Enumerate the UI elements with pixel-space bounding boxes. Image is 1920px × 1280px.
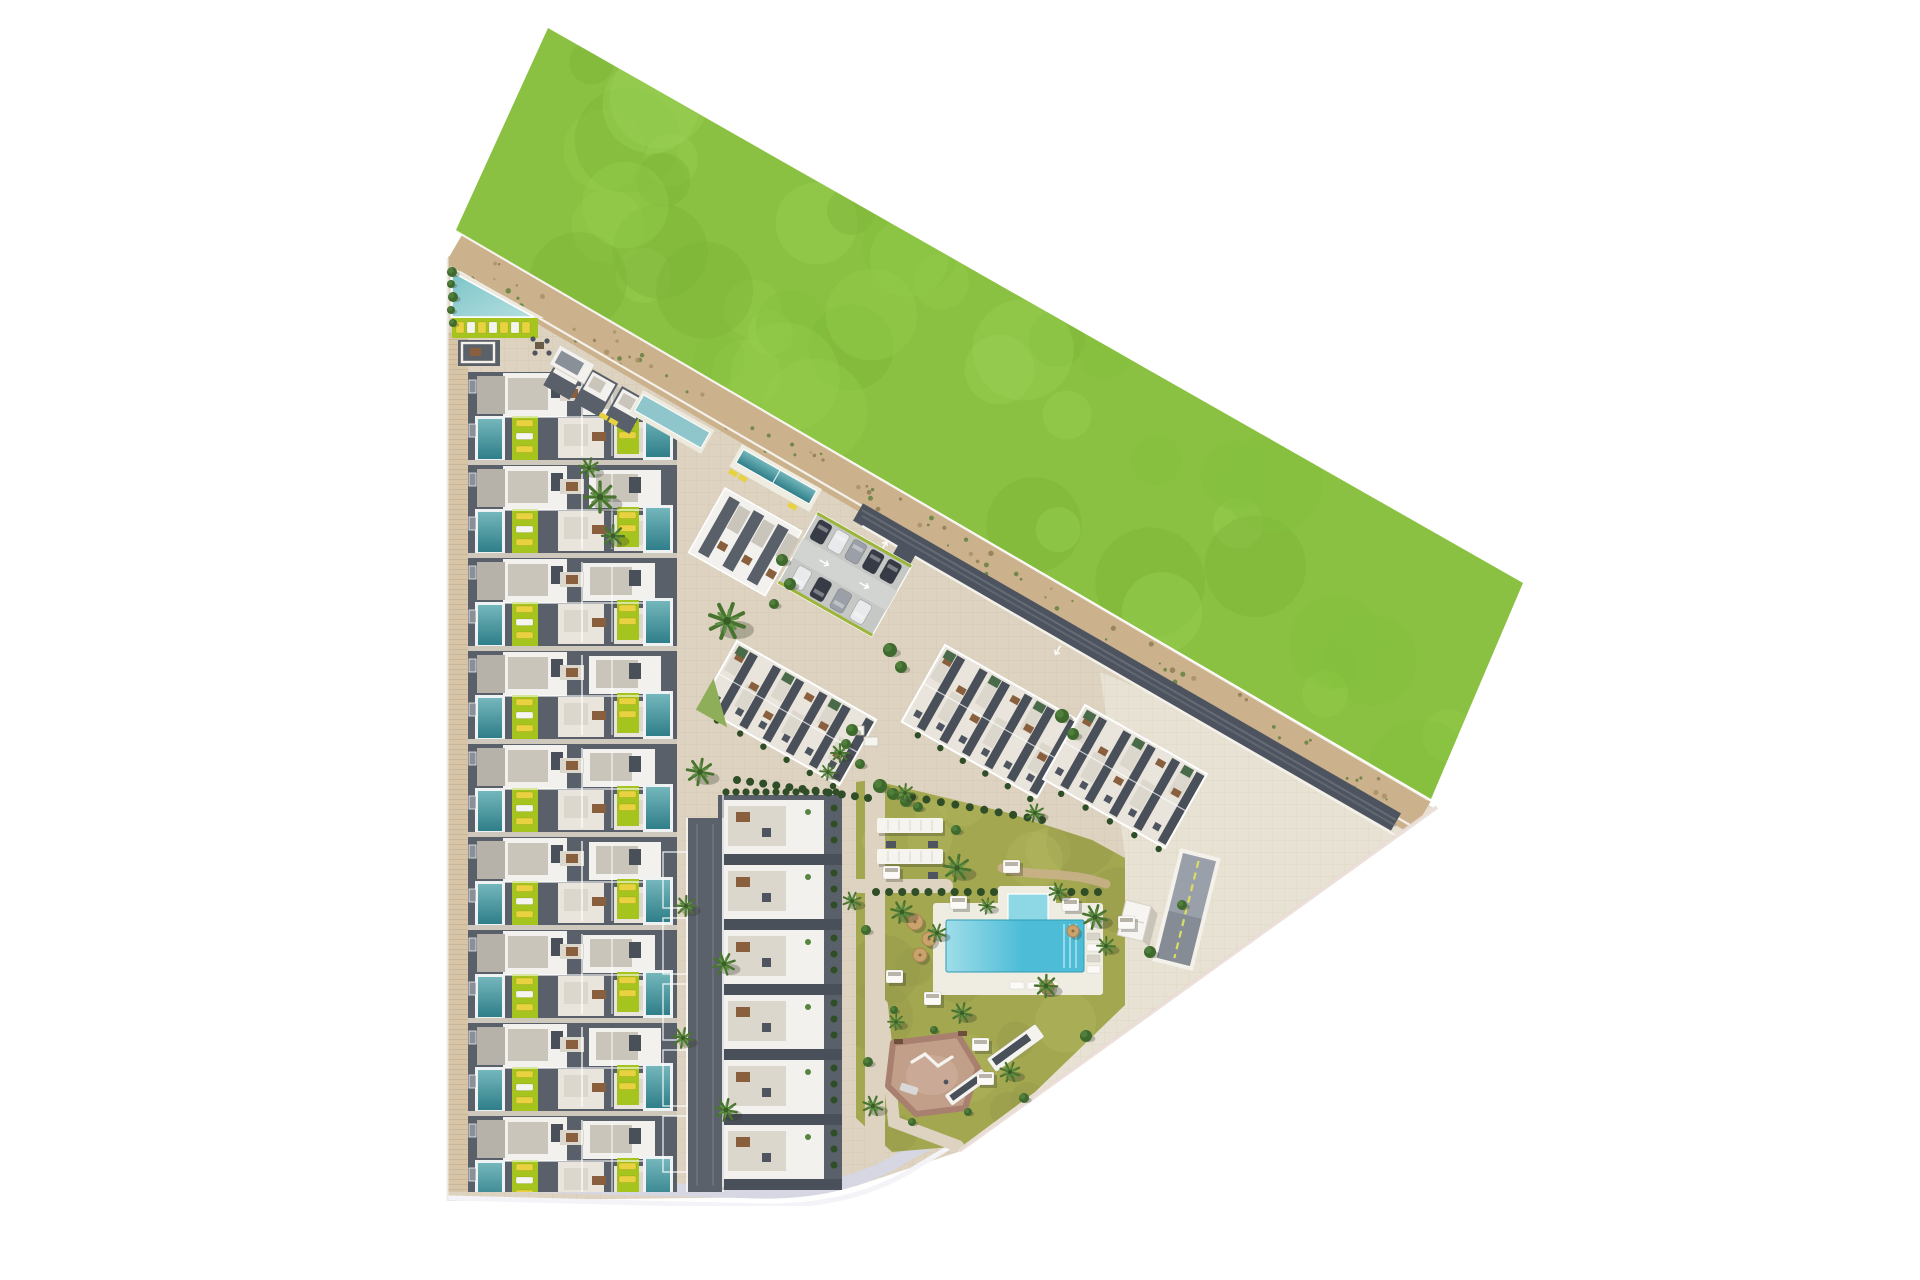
stairwell xyxy=(629,1035,641,1051)
terrace-floor xyxy=(508,936,548,968)
planter-box xyxy=(864,737,878,746)
shrub-dot xyxy=(617,356,622,361)
sun-lounger xyxy=(516,420,533,427)
hedge-dot xyxy=(977,888,985,896)
private-pool xyxy=(478,605,502,645)
playground xyxy=(888,1031,978,1114)
apartment-unit-roof xyxy=(718,1125,842,1190)
sun-lounger xyxy=(1010,982,1024,989)
shrub-dot xyxy=(493,262,497,266)
table xyxy=(762,1088,771,1097)
palm-crown xyxy=(871,1104,875,1108)
cabana-mattress xyxy=(974,1040,987,1044)
shrub-dot xyxy=(876,507,881,512)
balcony xyxy=(469,982,476,995)
hedge-dot xyxy=(722,788,729,795)
shrub-dot xyxy=(856,485,861,490)
shrub-dot xyxy=(871,488,874,491)
hedge-dot xyxy=(759,780,767,788)
shrub-highlight xyxy=(1068,729,1075,736)
shrub-dot xyxy=(615,339,618,342)
shrub-dot xyxy=(1163,668,1167,672)
dining-table xyxy=(592,525,606,534)
shrub-dot xyxy=(516,284,518,286)
hedge-dot xyxy=(885,888,893,896)
apartment-unit-roof xyxy=(718,800,842,865)
shrub-dot xyxy=(865,485,868,488)
bench xyxy=(894,1039,903,1044)
outside-south xyxy=(0,1206,1920,1280)
grass-patch xyxy=(1131,435,1182,486)
shrub-highlight xyxy=(1081,1031,1088,1038)
row-gap xyxy=(468,739,677,744)
apartment-unit-roof xyxy=(718,865,842,930)
shrub-dot xyxy=(793,453,796,456)
grass-patch xyxy=(1036,507,1081,552)
shrub-dot xyxy=(506,288,511,293)
dining-table xyxy=(592,1176,606,1185)
sun-lounger xyxy=(478,322,486,333)
sun-lounger xyxy=(619,990,636,997)
sun-lounger xyxy=(516,1084,533,1091)
townhouse-row xyxy=(468,651,677,744)
grass-patch xyxy=(972,299,1073,400)
terrace-floor xyxy=(508,378,548,410)
dining-table xyxy=(592,897,606,906)
hedge-dot xyxy=(851,792,859,800)
sun-lounger xyxy=(619,1176,636,1183)
outside-west xyxy=(0,0,447,1280)
shrub-dot xyxy=(1014,572,1019,577)
hedge-dot xyxy=(911,888,919,896)
dining-table xyxy=(736,1137,750,1147)
shrub-dot xyxy=(984,562,989,567)
shrub-highlight xyxy=(448,268,454,274)
shrub-dot xyxy=(1385,798,1387,800)
roof-plant xyxy=(805,1134,811,1140)
sun-lounger xyxy=(619,698,636,705)
hedge-dot xyxy=(831,821,838,828)
sun-lounger xyxy=(619,432,636,439)
unit-divider xyxy=(718,919,842,930)
grass-patch xyxy=(569,40,613,84)
hedge-dot xyxy=(831,967,838,974)
palm-crown xyxy=(597,494,604,501)
hedge-dot xyxy=(924,888,932,896)
shrub-dot xyxy=(540,294,545,299)
sun-lounger xyxy=(619,605,636,612)
shrub-dot xyxy=(498,263,501,266)
row-gap xyxy=(468,460,677,465)
shrub-dot xyxy=(1180,672,1185,677)
sun-lounger xyxy=(489,322,497,333)
shrub-highlight xyxy=(448,307,452,311)
dining-table xyxy=(592,711,606,720)
sun-lounger xyxy=(516,539,533,546)
sun-lounger xyxy=(467,322,475,333)
balcony xyxy=(469,845,476,858)
dining-table xyxy=(736,812,750,822)
unit-divider xyxy=(718,1179,842,1190)
shrub-dot xyxy=(1309,739,1312,742)
hedge-dot xyxy=(785,783,793,791)
dining-table xyxy=(736,1007,750,1017)
palm-crown xyxy=(954,865,960,871)
balcony xyxy=(469,473,476,486)
shrub-dot xyxy=(1111,626,1116,631)
shrub-highlight xyxy=(785,579,792,586)
palm-crown xyxy=(985,904,989,908)
daybed-cabana xyxy=(883,866,900,879)
dining-table xyxy=(566,482,578,491)
palm-crown xyxy=(960,1011,964,1015)
chair xyxy=(532,350,537,355)
balcony xyxy=(469,517,476,530)
patio-floor xyxy=(477,469,505,507)
picnic-table xyxy=(928,841,938,848)
apartment-building-long xyxy=(718,788,842,1190)
shrub-highlight xyxy=(864,1058,870,1064)
shrub-dot xyxy=(1377,777,1381,781)
shrub-highlight xyxy=(1020,1094,1026,1100)
unit-divider xyxy=(718,1049,842,1060)
cabana-mattress xyxy=(888,972,901,976)
palm-crown xyxy=(1104,944,1108,948)
shrub-dot xyxy=(1071,600,1073,602)
shrub-dot xyxy=(868,496,873,501)
grass-patch xyxy=(610,49,709,148)
shrub-dot xyxy=(1050,588,1052,590)
balcony xyxy=(469,938,476,951)
balcony xyxy=(469,703,476,716)
apartment-unit-roof xyxy=(718,995,842,1060)
hedge-dot xyxy=(831,805,838,812)
sun-lounger xyxy=(619,897,636,904)
picnic-table xyxy=(886,841,896,848)
sun-lounger xyxy=(619,977,636,984)
row-gap xyxy=(468,553,677,558)
daybed-cabana xyxy=(886,970,903,983)
sun-lounger xyxy=(516,885,533,892)
shrub-dot xyxy=(1170,667,1176,673)
hedge-dot xyxy=(937,798,945,806)
private-pool xyxy=(478,419,502,459)
hedge-dot xyxy=(1009,811,1017,819)
shrub-dot xyxy=(810,451,812,453)
apartment-unit-roof xyxy=(718,930,842,995)
terrace-floor xyxy=(508,843,548,875)
shrub-dot xyxy=(899,497,902,500)
shrub-highlight xyxy=(448,281,452,285)
table xyxy=(762,893,771,902)
shrub-dot xyxy=(1044,596,1046,598)
terrace-floor xyxy=(590,567,632,595)
daybed-cabana xyxy=(924,992,941,1005)
sun-lounger xyxy=(516,699,533,706)
hedge-dot xyxy=(825,789,833,797)
hedge-dot xyxy=(831,1032,838,1039)
palm-crown xyxy=(1044,984,1049,989)
shrub-dot xyxy=(700,393,704,397)
sun-lounger xyxy=(619,618,636,625)
sun-lounger xyxy=(516,898,533,905)
shrub-dot xyxy=(1304,741,1308,745)
sun-lounger xyxy=(516,911,533,918)
sun-lounger xyxy=(619,1070,636,1077)
palm-crown xyxy=(826,770,830,774)
table xyxy=(762,958,771,967)
shrub-dot xyxy=(1020,578,1023,581)
sun-lounger xyxy=(619,1083,636,1090)
sun-lounger xyxy=(516,433,533,440)
sun-lounger xyxy=(619,1163,636,1170)
terrace-floor xyxy=(590,939,632,967)
shrub-dot xyxy=(917,523,922,528)
hedge-dot xyxy=(733,776,741,784)
hedge-dot xyxy=(792,788,799,795)
cabana-mattress xyxy=(885,868,898,872)
shrub-dot xyxy=(635,358,640,363)
private-pool xyxy=(646,508,670,550)
shrub-dot xyxy=(493,278,495,280)
private-pool xyxy=(478,884,502,924)
hedge-dot xyxy=(951,801,959,809)
palm-crown xyxy=(850,899,854,903)
balcony xyxy=(469,380,476,393)
terrace-floor xyxy=(564,703,588,725)
private-pool xyxy=(646,694,670,736)
table xyxy=(762,828,771,837)
sun-lounger xyxy=(516,1071,533,1078)
palm-crown xyxy=(894,1020,898,1024)
shrub-highlight xyxy=(884,644,892,652)
roof-plant xyxy=(805,874,811,880)
patio-floor xyxy=(477,934,505,972)
stairwell xyxy=(629,477,641,493)
unit-divider xyxy=(718,984,842,995)
shrub-dot xyxy=(640,353,644,357)
private-pool xyxy=(646,973,670,1015)
shrub-dot xyxy=(976,560,980,564)
balcony xyxy=(469,1168,476,1181)
row-gap xyxy=(468,1111,677,1116)
dining-table xyxy=(566,761,578,770)
hedge-dot xyxy=(951,888,959,896)
palm-crown xyxy=(1092,914,1097,919)
palm-crown xyxy=(838,751,842,755)
sun-lounger xyxy=(522,322,530,333)
private-pool xyxy=(478,791,502,831)
hedge-dot xyxy=(831,1146,838,1153)
fire-table xyxy=(535,342,544,349)
sun-lounger xyxy=(500,322,508,333)
hedge-dot xyxy=(831,951,838,958)
stairwell xyxy=(629,570,641,586)
patio-floor xyxy=(477,562,505,600)
terrace-floor xyxy=(564,1075,588,1097)
table xyxy=(762,1023,771,1032)
site-plan-render xyxy=(0,0,1920,1280)
sun-lounger xyxy=(516,1164,533,1171)
dining-table xyxy=(566,668,578,677)
terrace-floor xyxy=(590,753,632,781)
balcony xyxy=(469,1075,476,1088)
hedge-dot xyxy=(966,803,974,811)
stairwell xyxy=(629,942,641,958)
hedge-dot xyxy=(772,781,780,789)
private-pool xyxy=(478,698,502,738)
hedge-dot xyxy=(990,888,998,896)
sun-lounger xyxy=(1087,933,1100,940)
hedge-dot xyxy=(831,837,838,844)
shrub-dot xyxy=(1105,638,1107,640)
shrub-highlight xyxy=(856,760,862,766)
sun-lounger xyxy=(516,818,533,825)
shrub-dot xyxy=(790,442,794,446)
hedge-dot xyxy=(838,790,846,798)
dining-table xyxy=(592,618,606,627)
cabana-mattress xyxy=(1120,918,1133,922)
terrace-floor xyxy=(508,657,548,689)
patio-floor xyxy=(477,655,505,693)
hedge-dot xyxy=(831,935,838,942)
townhouse-column xyxy=(448,332,677,1209)
site-plan-svg xyxy=(0,0,1920,1280)
shrub-dot xyxy=(593,339,596,342)
hedge-dot xyxy=(980,806,988,814)
sun-lounger xyxy=(1087,966,1100,973)
daybed-cabana xyxy=(972,1038,989,1051)
stairwell xyxy=(629,1128,641,1144)
palm-crown xyxy=(722,962,727,967)
sun-lounger xyxy=(516,792,533,799)
terrace-floor xyxy=(508,1029,548,1061)
terrace-floor xyxy=(564,517,588,539)
dining-table xyxy=(736,942,750,952)
shrub-highlight xyxy=(891,1007,895,1011)
hedge-dot xyxy=(831,870,838,877)
daybed-cabana xyxy=(1003,860,1020,873)
hedge-dot xyxy=(995,808,1003,816)
palm-crown xyxy=(900,910,905,915)
cabana-mattress xyxy=(979,1074,992,1078)
grass-patch xyxy=(1204,515,1306,617)
sun-lounger xyxy=(619,711,636,718)
sun-lounger xyxy=(516,725,533,732)
palm-crown xyxy=(724,1108,729,1113)
dining-table xyxy=(566,575,578,584)
grass-patch xyxy=(870,218,949,297)
chair xyxy=(530,336,535,341)
palm-crown xyxy=(723,617,731,625)
shrub-dot xyxy=(1355,779,1358,782)
hedge-dot xyxy=(742,788,749,795)
balcony xyxy=(469,796,476,809)
shrub-dot xyxy=(947,544,949,546)
shrub-dot xyxy=(1272,725,1276,729)
shrub-dot xyxy=(821,458,824,461)
hedge-dot xyxy=(872,888,880,896)
hedge-dot xyxy=(831,1162,838,1169)
sun-lounger xyxy=(516,805,533,812)
shrub-highlight xyxy=(896,662,903,669)
sun-lounger xyxy=(516,619,533,626)
shrub-highlight xyxy=(874,780,882,788)
hedge-dot xyxy=(964,888,972,896)
dining-table xyxy=(592,990,606,999)
shrub-highlight xyxy=(888,789,895,796)
grass-patch xyxy=(1223,433,1323,533)
sun-lounger xyxy=(516,978,533,985)
dining-table xyxy=(736,1072,750,1082)
shrub-dot xyxy=(1373,790,1378,795)
dining-table xyxy=(566,1133,578,1142)
shrub-dot xyxy=(988,551,993,556)
dining-table xyxy=(736,877,750,887)
shrub-dot xyxy=(820,453,823,456)
shrub-dot xyxy=(1245,698,1248,701)
hedge-dot xyxy=(922,796,930,804)
shrub-highlight xyxy=(1178,901,1184,907)
row-gap xyxy=(468,1018,677,1023)
sun-lounger xyxy=(516,446,533,453)
shrub-dot xyxy=(750,426,754,430)
dining-table xyxy=(566,947,578,956)
patio-floor xyxy=(477,376,505,414)
shrub-dot xyxy=(516,297,519,300)
private-pool xyxy=(646,1066,670,1108)
palm-crown xyxy=(587,466,591,470)
palm-crown xyxy=(611,534,616,539)
sun-lounger xyxy=(516,1177,533,1184)
hedge-dot xyxy=(831,902,838,909)
hedge-dot xyxy=(831,886,838,893)
balcony xyxy=(469,566,476,579)
palm-crown xyxy=(681,1036,685,1040)
shrub-dot xyxy=(767,433,771,437)
dining-table xyxy=(592,1083,606,1092)
palm-crown xyxy=(935,931,939,935)
shrub-highlight xyxy=(914,803,920,809)
roof-plant xyxy=(805,939,811,945)
hedge-dot xyxy=(1081,888,1089,896)
hedge-dot xyxy=(762,788,769,795)
shrub-highlight xyxy=(931,1027,935,1031)
private-pool xyxy=(646,601,670,643)
hedge-dot xyxy=(772,788,779,795)
hedge-dot xyxy=(831,1097,838,1104)
shrub-dot xyxy=(572,328,575,331)
dining-table xyxy=(592,432,606,441)
terrace-floor xyxy=(508,471,548,503)
palm-crown xyxy=(1008,1070,1012,1074)
sun-lounger xyxy=(516,606,533,613)
stairwell xyxy=(629,756,641,772)
shrub-highlight xyxy=(1145,947,1152,954)
hedge-dot xyxy=(1094,888,1102,896)
hedge-dot xyxy=(831,1130,838,1137)
shrub-dot xyxy=(929,516,934,521)
shrub-highlight xyxy=(777,555,784,562)
sun-lounger xyxy=(516,1097,533,1104)
stairwell xyxy=(629,849,641,865)
hedge-dot xyxy=(746,778,754,786)
hedge-dot xyxy=(898,888,906,896)
hedge-dot xyxy=(864,794,872,802)
shrub-dot xyxy=(867,490,872,495)
hedge-dot xyxy=(831,1065,838,1072)
terrace-floor xyxy=(508,1122,548,1154)
